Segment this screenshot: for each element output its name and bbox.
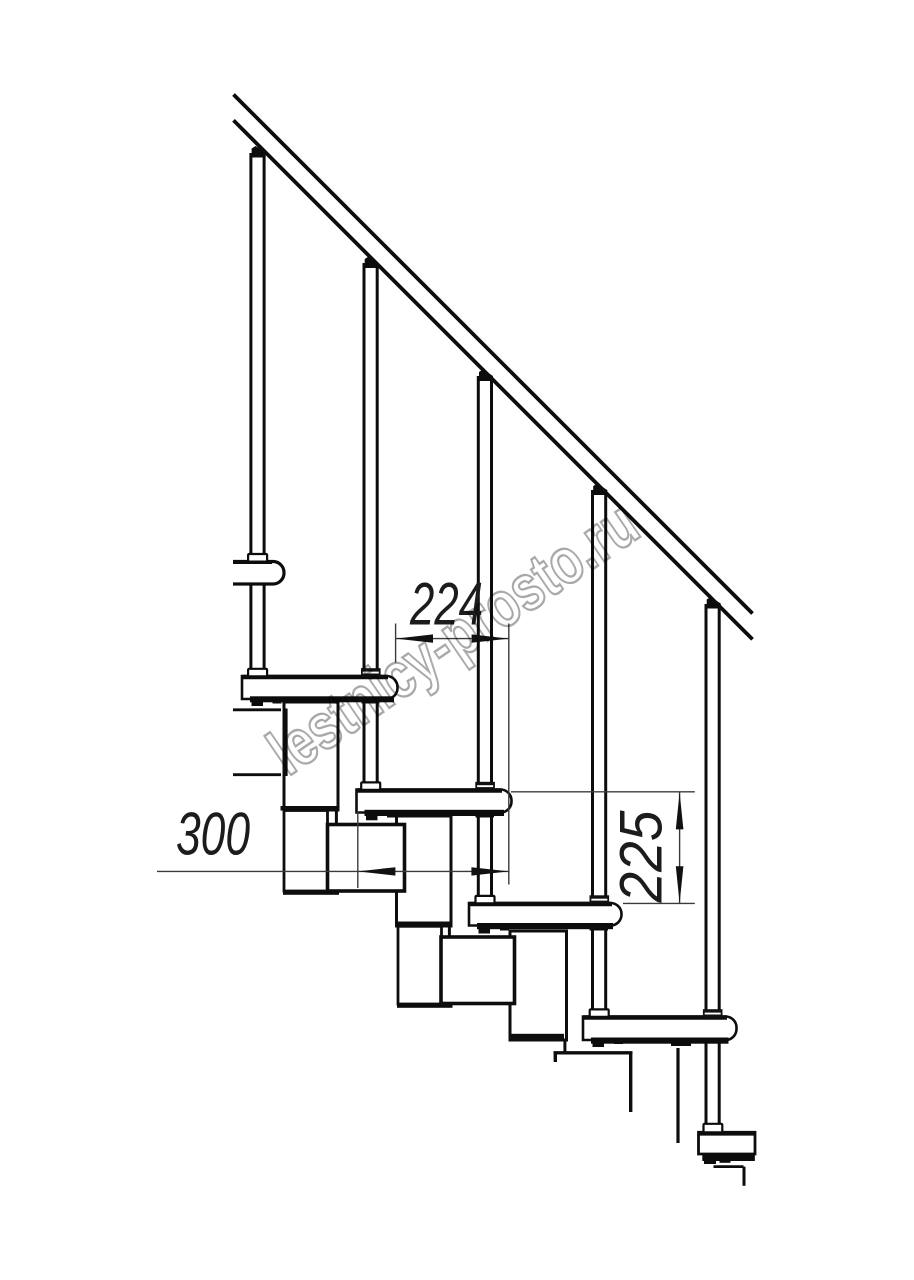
svg-text:lestnicy-prosto.ru: lestnicy-prosto.ru [255, 486, 651, 789]
